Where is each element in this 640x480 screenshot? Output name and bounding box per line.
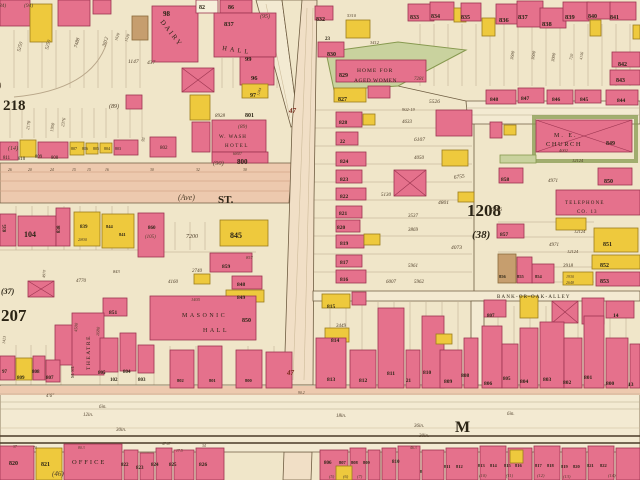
map-label: 806 (82, 146, 88, 151)
map-label: 827 (338, 97, 347, 103)
map-label: 26 (8, 168, 12, 172)
map-label: HALL (203, 328, 229, 334)
map-label: 825 (169, 463, 177, 468)
building (610, 70, 640, 85)
theatre-label: THEATRE (86, 335, 92, 370)
home-for-aged-label: HOME FOR (357, 68, 393, 74)
map-label: 6in. (507, 412, 515, 417)
building (436, 334, 452, 344)
map-label: 814 (490, 463, 498, 468)
map-label: 806 (484, 381, 493, 387)
map-label: 803 (138, 378, 146, 383)
building (126, 95, 142, 109)
building (616, 448, 640, 480)
map-label: (94) (24, 2, 33, 9)
map-label: 817 (535, 463, 543, 468)
building (346, 20, 370, 38)
map-label: 4073 (451, 244, 462, 251)
map-label: 838 (542, 21, 553, 28)
building (368, 86, 390, 98)
street-name-st: ST. (218, 194, 234, 206)
map-label: 810 (18, 157, 26, 162)
building (510, 450, 523, 463)
map-label: 15 (87, 168, 91, 172)
map-label: 849 (606, 141, 615, 147)
map-label: 1147 (128, 58, 139, 65)
map-label: HOTEL (225, 144, 249, 149)
map-label: 3918 (563, 264, 574, 269)
building (58, 0, 90, 26)
square-number-46: (46) (52, 470, 64, 478)
map-label: 6847 (233, 151, 243, 156)
map-label: M. ST. (70, 366, 75, 378)
map-label: 805 (93, 146, 99, 151)
map-label: 856 (499, 274, 507, 279)
building (363, 114, 375, 125)
street-m (0, 385, 640, 452)
map-label: 4971 (548, 179, 558, 184)
map-label: 96 (251, 75, 258, 82)
map-label: 3449 (336, 324, 347, 329)
map-label: 809 (444, 379, 453, 385)
map-label: 813 (327, 377, 336, 383)
building (120, 333, 136, 371)
map-label: 4'6" (46, 394, 55, 399)
map-label: 839 (80, 225, 88, 230)
map-label: 859 (222, 264, 231, 270)
map-label: 13 (628, 382, 634, 388)
map-label: 850 (604, 179, 613, 185)
map-label: 844 (106, 224, 114, 229)
map-label: 820 (573, 464, 581, 469)
building (190, 95, 210, 120)
map-label: 822 (340, 194, 349, 200)
map-label: 104 (24, 230, 36, 239)
map-label: 1930 (566, 274, 574, 279)
building (132, 16, 148, 40)
office-label: OFFICE (72, 459, 106, 466)
street-name-m: M (455, 419, 470, 436)
map-label: 850 (242, 318, 251, 324)
map-label: 46.3 (410, 446, 417, 450)
map-label: 810 (423, 370, 432, 376)
map-label: 3537 (408, 214, 419, 219)
map-label: 17.5 (176, 449, 183, 453)
map-label: 821 (587, 463, 595, 468)
map-label: 86 (228, 5, 234, 11)
map-label: 857 (246, 255, 254, 260)
church-grounds-strip (500, 155, 536, 163)
map-label: 824 (151, 463, 159, 468)
map-label: 6in. (99, 405, 107, 410)
building (0, 356, 15, 380)
map-label: 30in. (419, 434, 429, 439)
map-label: 22 (340, 140, 346, 145)
map-label: 841 (119, 232, 127, 237)
map-label: 808 (32, 370, 40, 375)
map-label: 14 (613, 313, 619, 319)
map-label: 811 (387, 371, 395, 377)
map-label: 8928 (215, 114, 226, 119)
map-label: (90) (213, 160, 224, 167)
map-label: 803 (543, 377, 552, 383)
map-label: (13) (563, 474, 571, 479)
building (482, 18, 495, 36)
map-label: 822 (121, 463, 129, 468)
map-label: 34 (202, 444, 206, 448)
street-number-47-south: 47 (286, 369, 295, 377)
map-label: 837 (518, 14, 529, 21)
church-label: M. E. (554, 133, 578, 139)
map-label: 801 (245, 113, 254, 119)
building (33, 356, 45, 380)
map-label: 840 (588, 14, 597, 20)
map-label: (6) (343, 474, 349, 479)
map-label: 36in. (414, 424, 424, 429)
map-label: 801 (209, 378, 217, 383)
telephone-co-label: TELEPHONE (565, 201, 605, 206)
map-label: 808 (51, 156, 59, 161)
map-label: 809 (363, 460, 371, 465)
map-label: 844 (617, 98, 626, 104)
map-label: 5962 (414, 280, 425, 285)
map-label: 99 (245, 56, 252, 63)
building (464, 338, 478, 388)
map-label: 5310 (347, 13, 357, 18)
map-label: (12) (537, 473, 545, 478)
street-ave (0, 163, 292, 203)
map-label: 803 (115, 146, 121, 151)
map-label: 843 (616, 78, 625, 84)
street-47-south (283, 452, 312, 480)
map-label: (95) (260, 13, 270, 20)
map-label: 820 (9, 461, 18, 467)
map-label: 12124 (572, 158, 584, 163)
map-label: 858 (501, 177, 510, 183)
map-label: 12124 (567, 249, 579, 254)
map-label: (89) (109, 103, 119, 110)
map-label: 902-19 (402, 107, 415, 112)
map-label: 829 (339, 73, 348, 79)
map-label: 808 (461, 373, 470, 379)
map-label: 835 (3, 224, 8, 232)
map-label: 800 (606, 381, 615, 387)
map-label: 24 (50, 168, 54, 172)
map-label: 7200 (186, 234, 198, 240)
map-label: 800 (237, 158, 248, 166)
map-label: 819 (561, 464, 569, 469)
map-label: 848 (490, 97, 499, 103)
map-label: 820 (337, 225, 346, 231)
map-label: 802 (563, 380, 572, 386)
map-label: 851 (603, 242, 612, 248)
building (55, 325, 73, 365)
map-label: 804 (520, 379, 529, 385)
map-label: 23 (325, 37, 331, 42)
building (590, 20, 601, 36)
map-label: (105) (145, 235, 156, 240)
map-label: 828 (339, 120, 348, 126)
map-label: (11) (506, 473, 514, 478)
building (30, 4, 52, 42)
map-label: 812 (359, 378, 368, 384)
map-label: 826 (199, 462, 208, 468)
building (220, 0, 252, 13)
map-label: 811 (444, 464, 451, 469)
map-label: 806 (324, 461, 332, 466)
map-label: 720 (568, 53, 574, 60)
map-label: 851 (109, 310, 118, 316)
map-label: 5526 (429, 99, 440, 105)
map-label: 90.2 (298, 391, 305, 395)
map-label: 12in. (83, 413, 93, 418)
map-label: 4160 (168, 280, 179, 285)
map-label: 811 (3, 156, 11, 161)
map-label: 842 (618, 62, 627, 68)
map-label: (7) (357, 474, 363, 479)
map-label: 848 (237, 282, 246, 288)
map-label: 15 (72, 168, 76, 172)
map-label: 6107 (414, 137, 425, 143)
map-label: CHURCH (546, 141, 582, 148)
map-label: 847 (521, 96, 530, 102)
building (364, 234, 380, 245)
map-label: 855 (517, 274, 525, 279)
map-label: 437 (147, 59, 156, 66)
map-label: 4002 (559, 148, 569, 153)
map-label: 832 (316, 17, 325, 23)
map-label: 5130 (381, 193, 392, 198)
map-label: 807 (487, 314, 495, 319)
map-label: 800 (245, 378, 253, 383)
building (633, 25, 640, 39)
building (422, 450, 444, 480)
map-label: 823 (340, 177, 349, 183)
hotel-label: W. WASH (219, 135, 247, 140)
map-label: 849 (237, 295, 246, 301)
map-label: 805 (98, 371, 106, 376)
map-label: 12124 (574, 229, 586, 234)
building (490, 122, 502, 138)
map-label: 1405 (191, 297, 201, 302)
map-label: (5) (329, 474, 335, 479)
map-label: 821 (339, 211, 348, 217)
map-label: 817 (340, 260, 349, 266)
map-label: 807 (46, 376, 54, 381)
map-label: 821 (41, 462, 50, 468)
map-label: 16 (105, 168, 109, 172)
map-label: 807 (339, 460, 347, 465)
map-label: 805 (503, 377, 511, 382)
map-label: 2800 (78, 237, 88, 242)
map-label: (14) (8, 145, 18, 152)
map-label: 816 (515, 463, 523, 468)
building (352, 292, 366, 305)
building (100, 338, 118, 372)
building (594, 228, 638, 252)
map-label: 804 (104, 146, 110, 151)
building (93, 0, 111, 14)
map-label: 854 (535, 274, 543, 279)
map-label: 3412 (370, 40, 380, 45)
map-label: 823 (136, 466, 144, 471)
map-label: 824 (340, 159, 349, 165)
street-number-47: 47 (288, 107, 297, 115)
map-label: 102 (110, 378, 118, 383)
map-label: 836 (499, 17, 510, 24)
map-label: 839 (565, 14, 576, 21)
building (102, 214, 134, 248)
map-label: 837 (224, 21, 235, 28)
map-label: 4050 (414, 156, 425, 161)
map-label: 819 (340, 241, 349, 247)
map-label: 3869 (408, 228, 419, 233)
map-label: 4970 (41, 270, 47, 278)
map-label: 1423 (1, 336, 7, 344)
map-label: 815 (327, 304, 336, 310)
building (194, 274, 210, 284)
map-label: 2648 (566, 280, 574, 285)
building (606, 301, 634, 318)
map-label: 30in. (116, 428, 126, 433)
map-label: 6786 (491, 207, 502, 213)
map-label: 833 (410, 15, 419, 21)
map-label: 808 (351, 460, 359, 465)
map-label: AGED WOMEN (354, 78, 397, 84)
map-label: 30 (150, 168, 154, 172)
map-label: 5961 (408, 264, 418, 269)
building (398, 446, 420, 480)
atlas-map-viewport: (84)(94)98DAIRY5250525074883012162015201… (0, 0, 640, 480)
building (436, 110, 472, 136)
map-label: 857 (500, 232, 509, 238)
map-label: 804 (123, 370, 131, 375)
building (20, 140, 36, 157)
map-label: 852 (600, 263, 609, 269)
map-label: (14) (608, 473, 616, 478)
map-label: 98 (163, 10, 171, 18)
map-label: 841 (610, 15, 619, 21)
map-label: 4801 (438, 199, 449, 206)
map-label: 6007 (386, 280, 397, 285)
building (368, 450, 380, 480)
map-label: 21 (406, 379, 412, 384)
map-label: 4500 (73, 322, 79, 332)
map-label: 30 (243, 168, 247, 172)
map-label: 4770 (76, 279, 87, 284)
map-label: 47.67 (162, 442, 172, 446)
map-label: 801 (584, 375, 593, 381)
map-label: 7281 (414, 77, 424, 82)
map-label: 843 (113, 269, 121, 274)
map-label: 845 (230, 231, 242, 240)
street-name-ave: (Ave) (178, 193, 195, 202)
building (174, 450, 194, 480)
map-label: 834 (431, 14, 440, 20)
map-label: 18in. (336, 414, 346, 419)
map-label: (10) (479, 473, 487, 478)
map-label: 70 (33, 446, 37, 450)
map-label: 810 (392, 460, 400, 465)
map-label: 812 (456, 464, 464, 469)
map-label: 802 (160, 146, 168, 151)
map-label: 818 (547, 463, 555, 468)
map-label: 816 (340, 277, 349, 283)
map-label: 822 (600, 463, 608, 468)
masonic-hall-label: MASONIC (182, 313, 227, 319)
building (482, 326, 502, 388)
map-label: 813 (478, 463, 486, 468)
map-label: CO. 13 (577, 210, 597, 215)
map-label: 853 (600, 279, 609, 285)
building (138, 345, 154, 373)
map-label: 809 (17, 376, 25, 381)
map-label: 82 (199, 5, 205, 11)
building (220, 220, 268, 246)
map-label: 845 (580, 97, 589, 103)
map-label: (89) (238, 123, 247, 130)
alley-name: BANK-OR-OAK-ALLEY (497, 295, 571, 300)
square-number-207: 207 (1, 306, 27, 325)
square-number-218: 218 (3, 98, 26, 114)
map-label: 830 (327, 52, 336, 58)
map-label: 4633 (402, 120, 413, 125)
square-number-37: (37) (1, 287, 15, 296)
map-label: 838 (57, 225, 62, 233)
map-label: 97 (2, 370, 8, 375)
building (442, 150, 468, 166)
map-label: 20 (28, 168, 32, 172)
map-label: 807 (71, 146, 77, 151)
building (504, 125, 516, 135)
map-label: 846 (552, 97, 561, 103)
map-label: 2680 (95, 326, 101, 336)
map-label: 802 (177, 378, 185, 383)
square-number-38: (38) (472, 229, 490, 241)
building (192, 122, 210, 152)
map-label: (84) (0, 2, 6, 9)
map-label: 32 (196, 168, 200, 172)
map-label: 809 (35, 155, 43, 160)
map-label: 860 (148, 226, 156, 231)
map-label: 80.3 (78, 446, 85, 450)
atlas-map-canvas: (84)(94)98DAIRY5250525074883012162015201… (0, 0, 640, 480)
building (517, 257, 532, 283)
map-label: 814 (331, 338, 340, 344)
map-label: 815 (504, 463, 512, 468)
map-label: 4971 (549, 243, 559, 248)
map-label: 835 (461, 15, 470, 21)
map-label: 2740 (192, 269, 203, 274)
